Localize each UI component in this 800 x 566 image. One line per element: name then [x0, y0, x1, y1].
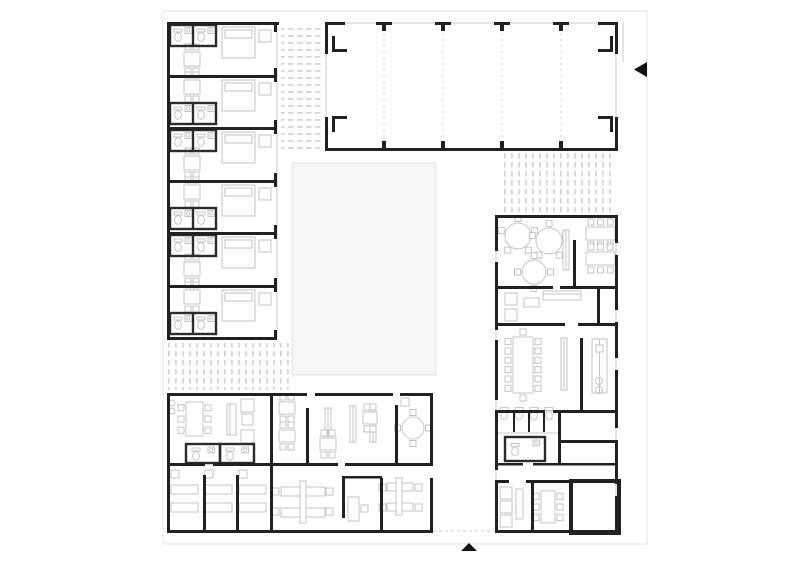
wall-segment	[382, 141, 386, 148]
chair	[321, 430, 327, 436]
locker	[516, 489, 523, 519]
wall-segment	[494, 22, 510, 25]
chair	[607, 244, 613, 250]
chair	[193, 306, 199, 312]
wall-segment	[495, 463, 523, 466]
chair	[329, 430, 335, 436]
chair	[205, 405, 211, 411]
chair	[515, 269, 521, 275]
dining-table	[184, 290, 200, 304]
wall-segment	[274, 278, 277, 292]
wall-segment	[332, 49, 347, 52]
wall-segment	[553, 22, 569, 25]
wall-segment	[345, 463, 433, 466]
cabinet	[401, 398, 409, 406]
sink	[533, 440, 540, 446]
chair	[598, 267, 604, 273]
chair	[535, 367, 541, 373]
bed-pillow	[225, 240, 252, 248]
wall-segment	[167, 180, 277, 183]
wall-segment	[380, 478, 383, 531]
toilet	[198, 321, 205, 330]
bed-pillow	[225, 135, 252, 143]
sink	[185, 133, 192, 139]
toilet-tank	[174, 212, 182, 215]
work-table	[320, 438, 336, 450]
wall-segment	[553, 410, 618, 413]
storage-shelf	[205, 485, 232, 494]
coffee-table	[524, 298, 539, 307]
toilet-tank	[197, 134, 205, 137]
wall-segment	[167, 232, 277, 235]
chair	[520, 329, 526, 335]
round-cafe-table	[536, 228, 562, 254]
round-table	[402, 417, 424, 439]
dining-table	[184, 80, 200, 94]
office-chair	[326, 508, 333, 515]
wall-segment	[578, 323, 618, 326]
wall-segment	[167, 285, 277, 288]
storage-shelf	[205, 503, 232, 512]
side-table	[259, 83, 271, 95]
toilet	[175, 111, 182, 120]
storage-shelf	[171, 503, 198, 512]
chair	[598, 244, 604, 250]
sink-basin	[210, 107, 213, 110]
sink	[185, 106, 192, 112]
toilet-tank	[511, 444, 519, 447]
chair	[535, 385, 541, 391]
sink	[208, 133, 215, 139]
dining-table-long	[586, 227, 615, 240]
chair	[178, 405, 184, 411]
chair	[535, 357, 541, 363]
chair	[535, 376, 541, 382]
chair	[178, 427, 184, 433]
chair	[288, 422, 294, 428]
chair	[525, 247, 531, 253]
side-table	[259, 240, 271, 252]
chair	[288, 416, 294, 422]
wall-segment	[598, 116, 613, 119]
chair	[505, 339, 511, 345]
cabinet	[239, 470, 247, 478]
wall-segment	[167, 530, 433, 533]
wall-segment	[528, 410, 530, 432]
paving-hatch-top	[281, 25, 323, 149]
armchair	[241, 430, 254, 443]
sink	[185, 238, 192, 244]
desk	[348, 497, 359, 521]
wall-segment	[306, 408, 309, 463]
cabinet	[171, 470, 179, 478]
sink-basin	[187, 317, 190, 320]
floor-plan-page	[0, 0, 800, 566]
dining-table	[184, 262, 200, 276]
lounge-chair	[500, 501, 512, 513]
toilet-tank	[197, 107, 205, 110]
wall-segment	[558, 410, 561, 465]
wall-segment	[274, 22, 277, 32]
toilet	[512, 447, 519, 456]
toilet	[198, 216, 205, 225]
toilet-tank	[174, 317, 182, 320]
wall-segment	[376, 22, 392, 25]
toilet	[175, 243, 182, 252]
wall-segment	[342, 476, 382, 479]
toilet	[193, 452, 200, 461]
sink	[208, 238, 215, 244]
chair	[557, 493, 563, 499]
wall-segment	[325, 117, 328, 151]
chair	[280, 422, 286, 428]
chair	[498, 228, 504, 234]
toilet-tank	[174, 239, 182, 242]
toilet-tank	[174, 107, 182, 110]
wall-segment	[315, 393, 393, 396]
work-table	[279, 430, 295, 442]
work-table	[279, 402, 295, 414]
wall-segment	[236, 475, 239, 532]
chair	[329, 452, 335, 458]
chair	[520, 395, 526, 401]
sink	[185, 211, 192, 217]
sink-basin	[244, 448, 247, 451]
toilet-tank	[174, 134, 182, 137]
chair	[185, 201, 191, 207]
chair	[548, 269, 554, 275]
wall-segment	[325, 148, 618, 151]
wall-segment	[500, 25, 504, 31]
chair	[505, 348, 511, 354]
dining-table	[184, 156, 200, 170]
toilet	[198, 243, 205, 252]
wall-segment	[435, 22, 451, 25]
wall-segment	[533, 463, 618, 466]
wall-segment	[597, 286, 600, 323]
cabinet	[205, 470, 213, 478]
wall-segment	[615, 255, 618, 310]
chair	[535, 339, 541, 345]
wall-segment	[495, 482, 498, 533]
chair	[505, 367, 511, 373]
wall-segment	[167, 127, 277, 130]
sofa	[543, 291, 581, 300]
wall-segment	[543, 410, 545, 432]
wall-segment	[382, 25, 386, 31]
chair	[288, 444, 294, 450]
side-table	[259, 30, 271, 42]
wall-segment	[569, 531, 621, 535]
sink	[208, 447, 215, 453]
wall-segment	[569, 479, 621, 483]
toilet	[546, 411, 553, 420]
desk-spine	[300, 481, 306, 523]
toilet	[198, 138, 205, 147]
sink-basin	[187, 239, 190, 242]
chair	[193, 201, 199, 207]
wall-segment	[615, 215, 618, 243]
lounge-chair	[500, 515, 512, 527]
wall-segment	[430, 393, 433, 465]
side-table	[259, 293, 271, 305]
wall-segment	[495, 412, 498, 470]
office-chair	[415, 504, 422, 511]
wall-segment	[167, 337, 277, 340]
chair	[410, 441, 416, 447]
toilet	[175, 33, 182, 42]
wall-segment	[441, 141, 445, 148]
wall-segment	[167, 75, 277, 78]
wall-segment	[274, 68, 277, 82]
sink-basin	[187, 107, 190, 110]
office-chair	[326, 488, 333, 495]
wall-segment	[274, 225, 277, 239]
dining-table	[186, 402, 203, 436]
storage-shelf	[171, 485, 198, 494]
chair	[588, 244, 594, 250]
wall-segment	[274, 330, 277, 340]
chair	[535, 348, 541, 354]
wall-segment	[325, 22, 328, 54]
toilet	[175, 216, 182, 225]
meeting-table	[541, 491, 555, 523]
chair	[546, 221, 552, 227]
toilet-tank	[174, 29, 182, 32]
sink	[208, 106, 215, 112]
floor-plan-drawing	[0, 0, 800, 566]
coffee-table	[242, 414, 253, 425]
conference-table	[513, 337, 533, 393]
wall-segment	[274, 120, 277, 134]
wall-segment	[495, 262, 498, 330]
round-cafe-table	[522, 260, 546, 284]
toilet	[175, 138, 182, 147]
toilet	[198, 111, 205, 120]
sink-basin	[210, 448, 213, 451]
chair	[280, 416, 286, 422]
armchair	[505, 293, 517, 305]
toilet-tank	[197, 212, 205, 215]
wall-segment	[430, 478, 433, 533]
hob	[596, 345, 603, 352]
chair	[505, 376, 511, 382]
toilet-tank	[545, 408, 553, 411]
wall-segment	[495, 286, 553, 289]
wall-segment	[559, 141, 563, 148]
wall-segment	[573, 240, 576, 286]
chair	[205, 427, 211, 433]
sink	[185, 28, 192, 34]
sink	[208, 28, 215, 34]
wall-segment	[342, 478, 345, 518]
office-chair	[272, 508, 279, 515]
sink-basin	[210, 29, 213, 32]
bed-pillow	[225, 83, 252, 91]
chair	[557, 515, 563, 521]
wall-segment	[495, 410, 545, 413]
chair	[607, 219, 613, 225]
office-chair	[415, 484, 422, 491]
wall-segment	[598, 49, 613, 52]
chair	[531, 253, 537, 259]
toilet-tank	[197, 317, 205, 320]
wall-segment	[395, 405, 398, 463]
wall-segment	[270, 393, 273, 463]
chair	[588, 267, 594, 273]
armchair	[241, 399, 254, 412]
bed-pillow	[225, 293, 252, 301]
chair	[364, 404, 370, 410]
chair	[370, 426, 376, 432]
chair	[410, 410, 416, 416]
wall-segment	[560, 286, 618, 289]
sink-basin	[187, 29, 190, 32]
sink-basin	[210, 239, 213, 242]
sink	[242, 447, 249, 453]
sink-basin	[210, 212, 213, 215]
dining-table	[184, 185, 200, 199]
round-cafe-table	[505, 223, 531, 249]
work-table	[363, 412, 377, 424]
chair	[185, 306, 191, 312]
chair	[193, 96, 199, 102]
chair	[505, 385, 511, 391]
chair	[557, 504, 563, 510]
chair	[205, 416, 211, 422]
sink	[185, 316, 192, 322]
toilet-tank	[197, 239, 205, 242]
wall-segment	[617, 479, 621, 535]
courtyard	[292, 163, 436, 375]
wall-segment	[495, 480, 509, 483]
chair	[370, 404, 376, 410]
wall-segment	[558, 440, 618, 443]
office-chair	[361, 505, 368, 512]
paving-hatch-west	[168, 343, 290, 390]
wall-segment	[213, 463, 338, 466]
sink-basin	[210, 317, 213, 320]
wall-segment	[203, 475, 206, 532]
wall-segment	[274, 173, 277, 187]
wall-segment	[495, 323, 565, 326]
toilet-tank	[197, 29, 205, 32]
dining-table-long	[586, 252, 615, 265]
chair	[280, 444, 286, 450]
toilet-tank	[226, 448, 234, 451]
wall-segment	[167, 22, 279, 25]
side-table	[259, 188, 271, 200]
wall-segment	[400, 393, 433, 396]
wall-segment	[531, 482, 534, 533]
sink-basin	[187, 212, 190, 215]
storage-shelf	[239, 503, 266, 512]
sink-basin	[535, 441, 538, 444]
toilet	[175, 321, 182, 330]
wall-segment	[167, 463, 205, 466]
toilet	[198, 33, 205, 42]
paving-hatch-east	[500, 153, 614, 213]
chair	[178, 416, 184, 422]
wall-segment	[615, 370, 618, 428]
wall-segment	[167, 393, 307, 396]
sink	[208, 211, 215, 217]
wall-segment	[495, 340, 498, 400]
chair	[598, 219, 604, 225]
wall-segment	[441, 25, 445, 31]
dining-table	[184, 52, 200, 66]
wall-segment	[615, 117, 618, 151]
chair	[505, 247, 511, 253]
sink-basin	[210, 134, 213, 137]
sink	[208, 316, 215, 322]
chair	[185, 96, 191, 102]
sink-basin	[187, 134, 190, 137]
chair	[607, 267, 613, 273]
bed-pillow	[225, 30, 252, 38]
office-chair	[272, 488, 279, 495]
toilet-tank	[192, 448, 200, 451]
wall-segment	[500, 141, 504, 148]
wall-segment	[495, 215, 618, 218]
wall-segment	[513, 410, 515, 432]
entrance-arrow-east	[634, 62, 647, 77]
bed-pillow	[225, 188, 252, 196]
side-table	[259, 135, 271, 147]
wall-segment	[615, 322, 618, 358]
wall-segment	[559, 25, 563, 31]
chair	[588, 219, 594, 225]
chair	[321, 452, 327, 458]
armchair	[505, 309, 517, 321]
wall-segment	[270, 463, 273, 533]
wall-segment	[332, 116, 347, 119]
chair	[364, 426, 370, 432]
wall-segment	[495, 215, 498, 251]
chair	[529, 233, 535, 239]
lounge-chair	[500, 487, 512, 499]
wall-segment	[615, 22, 618, 54]
desk-spine	[396, 478, 402, 515]
storage-shelf	[239, 485, 266, 494]
wall-segment	[580, 338, 583, 410]
chair	[505, 357, 511, 363]
sofa	[227, 404, 236, 435]
wall-segment	[569, 479, 573, 535]
chair	[556, 252, 562, 258]
toilet	[227, 452, 234, 461]
